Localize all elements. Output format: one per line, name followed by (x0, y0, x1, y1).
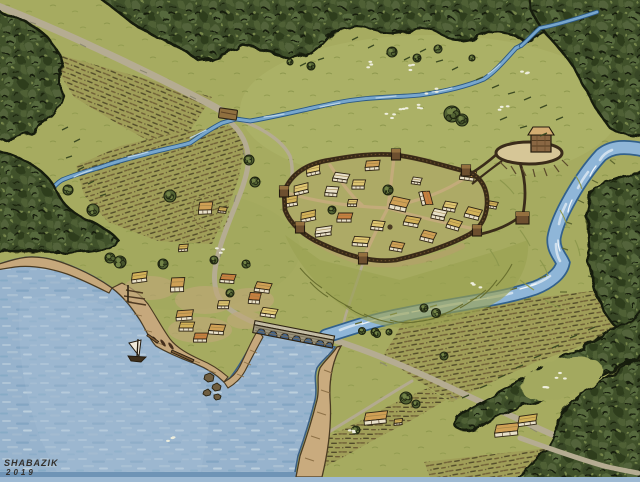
svg-text:2019: 2019 (5, 468, 36, 477)
svg-text:SHABAZIK: SHABAZIK (4, 458, 59, 468)
